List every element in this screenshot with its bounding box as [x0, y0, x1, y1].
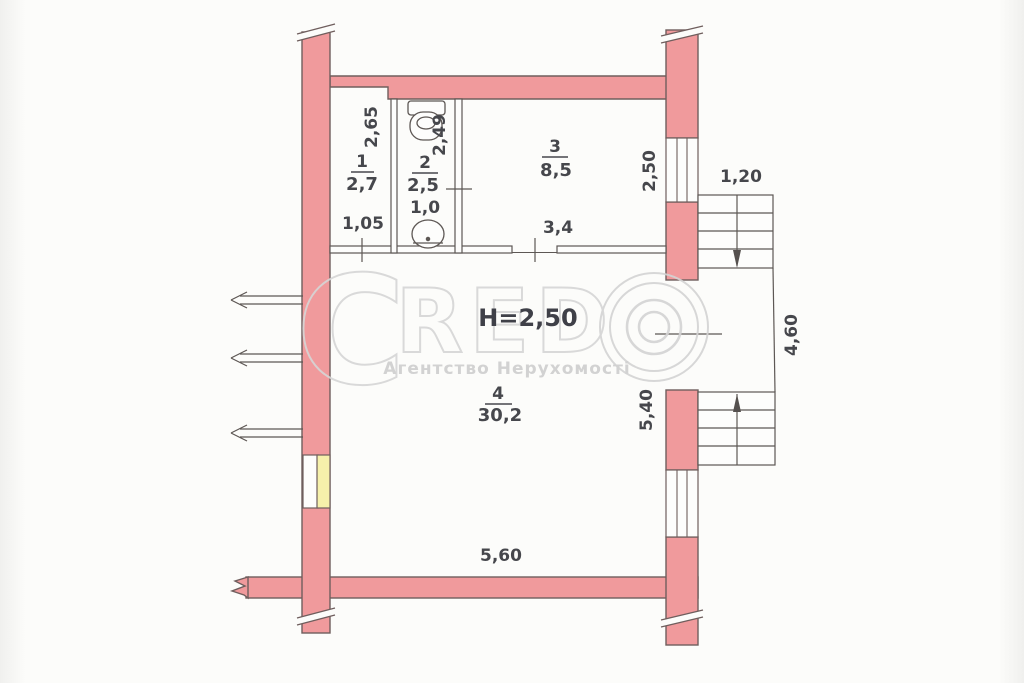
staircase — [698, 195, 775, 465]
sink-icon — [412, 220, 444, 248]
stairs-upper-flight — [698, 195, 773, 268]
right-wall-segment-3 — [666, 390, 698, 470]
watermark-subtitle: Агентство Нерухомості — [383, 359, 630, 379]
left-wall-arrow-3 — [231, 425, 303, 441]
room4-area: 30,2 — [478, 405, 522, 426]
dim-room4-depth: 5,40 — [637, 389, 657, 431]
stair-landing-edge — [773, 268, 775, 392]
window-upper — [666, 138, 698, 202]
ceiling-height-label: H=2,50 — [478, 304, 577, 332]
left-wall-blocked-opening-yellow — [317, 455, 330, 508]
right-wall-segment-1 — [666, 30, 698, 138]
room3-area: 8,5 — [540, 160, 572, 181]
dim-room1-width: 1,05 — [342, 214, 384, 234]
floor-plan-drawing: C RED Агентство Нерухомості 1 2,7 2 2,5 … — [0, 0, 1024, 683]
partition-room2-room3 — [455, 99, 462, 253]
bottom-wall-break-tip — [232, 577, 248, 598]
room2-sub-area: 1,0 — [410, 198, 440, 218]
dim-room2-depth: 2,49 — [430, 114, 450, 156]
dim-room3-width: 3,4 — [543, 218, 573, 238]
room1-number: 1 — [356, 152, 368, 172]
room3-number: 3 — [549, 137, 561, 157]
dim-stairs-width: 1,20 — [720, 167, 762, 187]
room1-area: 2,7 — [346, 174, 378, 195]
scanned-floor-plan: C RED Агентство Нерухомості 1 2,7 2 2,5 … — [0, 0, 1024, 683]
right-wall-segment-4 — [666, 537, 698, 645]
window-lower — [666, 470, 698, 537]
room4-number: 4 — [492, 384, 504, 404]
left-wall-arrow-1 — [231, 292, 303, 308]
right-wall-segment-2 — [666, 202, 698, 280]
top-wall — [330, 76, 668, 99]
partition-room1-room2 — [391, 99, 397, 253]
left-wall-arrows — [231, 292, 303, 441]
room2-area: 2,5 — [407, 175, 439, 196]
left-wall-arrow-2 — [231, 350, 303, 366]
dim-room3-depth: 2,50 — [640, 150, 660, 192]
dim-stairs-length: 4,60 — [782, 314, 802, 356]
partition-horizontal-right — [557, 246, 666, 253]
left-wall-blocked-opening — [303, 455, 318, 508]
dim-room1-depth: 2,65 — [362, 106, 382, 148]
stairs-lower-flight — [698, 392, 775, 465]
dim-room4-width: 5,60 — [480, 546, 522, 566]
watermark-letter-c: C — [296, 245, 406, 419]
